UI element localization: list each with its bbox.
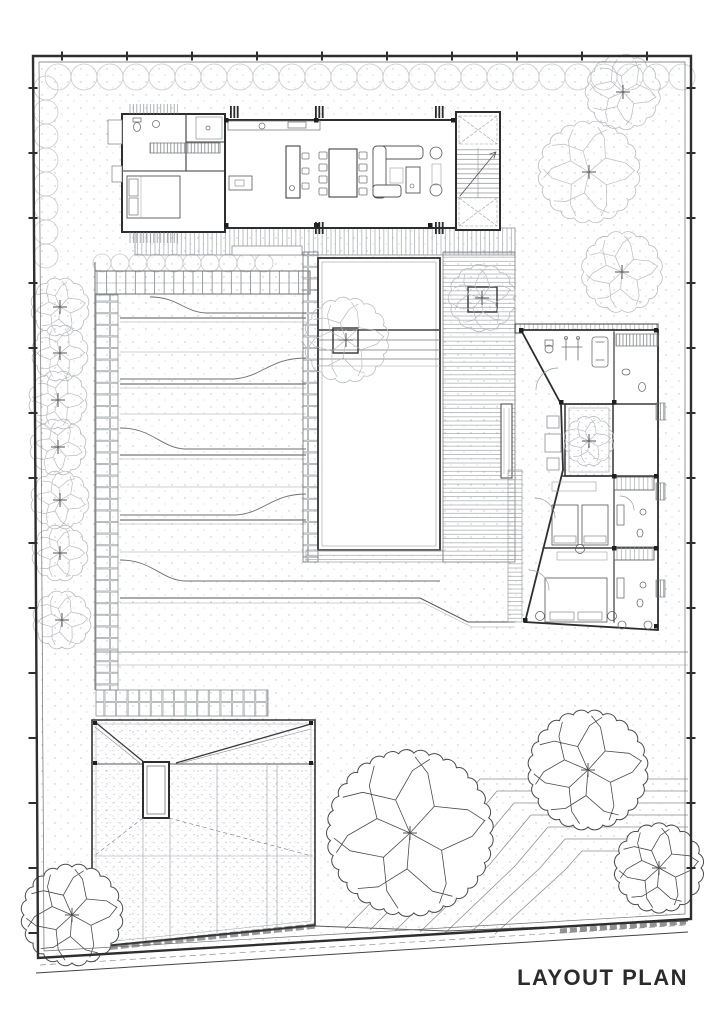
living-pavilion	[225, 120, 458, 228]
bedroom-block	[108, 104, 225, 243]
garden-path-turn	[96, 690, 268, 716]
deck-step	[232, 246, 302, 255]
pergola-band	[95, 271, 310, 294]
porch	[112, 166, 122, 182]
wardrobe	[150, 143, 220, 153]
swimming-pool	[318, 258, 440, 550]
main-house	[108, 104, 515, 255]
skylight-shaft	[143, 762, 169, 818]
vent-strip	[614, 547, 654, 560]
site-plan-drawing: LAYOUT PLAN	[0, 0, 724, 1024]
porch	[108, 120, 122, 144]
vent-strip	[128, 104, 178, 114]
vent-strip	[128, 232, 178, 243]
vent-strip	[614, 477, 654, 490]
courtyard-planters	[545, 416, 561, 470]
roof-pavilion	[92, 720, 315, 947]
pool-edge-pavers	[303, 252, 318, 562]
deck-bench	[501, 404, 512, 478]
staircase	[456, 112, 500, 230]
wing-walkway	[508, 470, 522, 622]
plan-title: LAYOUT PLAN	[517, 965, 688, 990]
pool-bottom-band	[306, 550, 443, 562]
closet	[616, 334, 658, 346]
tree-detailed	[327, 750, 494, 917]
layout-plan-page: LAYOUT PLAN	[0, 0, 724, 1024]
garden-path-vertical	[96, 295, 118, 690]
